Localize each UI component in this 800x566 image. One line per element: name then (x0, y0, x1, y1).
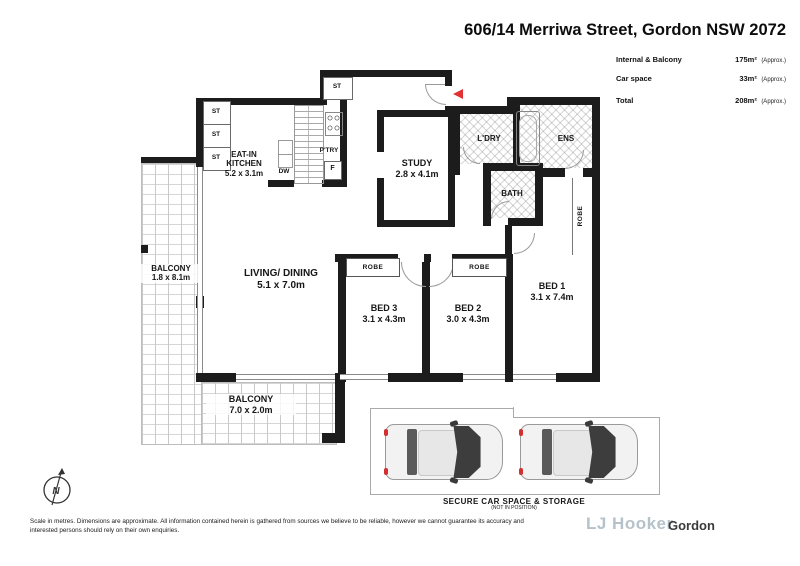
ensuite-label: ENS (545, 134, 587, 143)
car-roof (418, 430, 460, 476)
room-name: STUDY (384, 158, 450, 169)
robe-label: ROBE (469, 264, 490, 271)
wall (535, 163, 543, 225)
area-label: Car space (616, 74, 652, 83)
compass-icon: N (36, 460, 80, 512)
window (463, 374, 505, 380)
balcony-bottom-label: BALCONY 7.0 x 2.0m (206, 394, 296, 415)
room-name: BALCONY (206, 394, 296, 405)
room-dims: 5.1 x 7.0m (222, 280, 340, 292)
study-label: STUDY 2.8 x 4.1m (384, 158, 450, 179)
area-row-internal: Internal & Balcony 175m² (Approx.) (616, 49, 786, 67)
robe-label-vertical: ROBE (577, 194, 587, 238)
room-dims: 1.8 x 8.1m (140, 273, 202, 282)
wall (424, 254, 431, 262)
room-name: BALCONY (140, 264, 202, 273)
room-dims: 2.8 x 4.1m (384, 169, 450, 180)
wall (445, 70, 452, 86)
area-value: 175m² (735, 55, 757, 64)
room-name: BED 2 (434, 303, 502, 314)
carspace-step (513, 407, 660, 418)
wall (196, 373, 236, 382)
fridge-label: F (324, 165, 341, 173)
car-taillight (384, 429, 388, 436)
wall (322, 180, 347, 187)
area-note: (Approx.) (761, 58, 786, 64)
bed2-robe: ROBE (452, 258, 507, 277)
wall (507, 97, 600, 105)
car-1 (385, 424, 503, 480)
floorplan-page: 606/14 Merriwa Street, Gordon NSW 2072 I… (0, 0, 800, 566)
carspace-subtitle: (NOT IN POSITION) (370, 506, 658, 512)
room-name: LIVING/ DINING (222, 268, 340, 280)
area-row-carspace: Car space 33m² (Approx.) (616, 68, 786, 86)
wall (335, 373, 345, 437)
wall (592, 178, 600, 382)
wall (483, 218, 491, 226)
bed1-label: BED 1 3.1 x 7.4m (516, 281, 588, 302)
living-label: LIVING/ DINING 5.1 x 7.0m (222, 268, 340, 292)
car-2 (520, 424, 638, 480)
bed2-label: BED 2 3.0 x 4.3m (434, 303, 502, 324)
wall (556, 373, 600, 382)
wall (583, 168, 600, 177)
wall (377, 110, 384, 152)
entry-arrow-icon (453, 89, 463, 99)
room-dims: 7.0 x 2.0m (206, 405, 296, 416)
room-dims: 5.2 x 3.1m (200, 169, 288, 178)
area-row-total: Total 208m² (Approx.) (616, 90, 786, 108)
area-value: 208m² (735, 96, 757, 105)
bathtub-inner (519, 115, 537, 162)
room-dims: 3.1 x 4.3m (350, 314, 418, 325)
storage-label: ST (203, 108, 229, 116)
stove-icon (325, 112, 343, 136)
bed1-door-arc (514, 233, 535, 254)
office-name: Gordon (668, 518, 715, 533)
area-value: 33m² (739, 74, 757, 83)
balcony-left-label: BALCONY 1.8 x 8.1m (140, 264, 202, 283)
ljhooker-logo: LJ Hooker (586, 514, 674, 534)
bed3-door-arc (401, 262, 426, 287)
kitchen-bench (294, 105, 324, 184)
bed2-door-arc (429, 262, 454, 287)
sliding-door (236, 374, 335, 380)
pantry-label: P'TRY (312, 147, 346, 155)
wall (505, 262, 513, 373)
area-note: (Approx.) (761, 77, 786, 83)
window (513, 374, 556, 380)
robe-label: ROBE (363, 264, 384, 271)
wall (377, 220, 455, 227)
area-label: Internal & Balcony (616, 55, 682, 64)
wall (322, 433, 345, 443)
wall (541, 168, 565, 177)
car-windshield (453, 426, 480, 479)
laundry-label: L'DRY (466, 134, 512, 143)
compass-n-label: N (52, 486, 60, 497)
room-name: BED 3 (350, 303, 418, 314)
wall (377, 110, 455, 117)
wall (508, 218, 543, 226)
wall (141, 245, 148, 253)
entry-door-leaf (425, 84, 445, 85)
area-summary: Internal & Balcony 175m² (Approx.) Car s… (616, 49, 786, 109)
car-rear-window (407, 429, 416, 475)
room-name: EAT-IN (200, 150, 288, 159)
car-windshield (588, 426, 615, 479)
room-name: BED 1 (516, 281, 588, 292)
room-dims: 3.1 x 7.4m (516, 292, 588, 303)
area-label: Total (616, 96, 633, 105)
wall (505, 225, 512, 255)
car-taillight (519, 468, 523, 475)
wall (141, 157, 196, 163)
wall (452, 110, 460, 175)
bath-label: BATH (489, 189, 535, 198)
kitchen-label: EAT-IN KITCHEN 5.2 x 3.1m (200, 150, 288, 178)
room-dims: 3.0 x 4.3m (434, 314, 502, 325)
balcony-left-deck (141, 163, 203, 445)
bed3-label: BED 3 3.1 x 4.3m (350, 303, 418, 324)
page-title: 606/14 Merriwa Street, Gordon NSW 2072 (464, 21, 786, 40)
storage-label: ST (203, 131, 229, 139)
car-taillight (519, 429, 523, 436)
car-rear-window (542, 429, 551, 475)
window (340, 374, 388, 380)
storage-label: ST (323, 83, 351, 91)
car-roof (553, 430, 595, 476)
bed3-robe: ROBE (346, 258, 400, 277)
wall (268, 180, 294, 187)
wall (320, 70, 452, 77)
room-name: KITCHEN (200, 159, 288, 168)
entry-door-arc (425, 84, 446, 105)
wall (505, 373, 513, 382)
area-note: (Approx.) (761, 99, 786, 105)
car-taillight (384, 468, 388, 475)
